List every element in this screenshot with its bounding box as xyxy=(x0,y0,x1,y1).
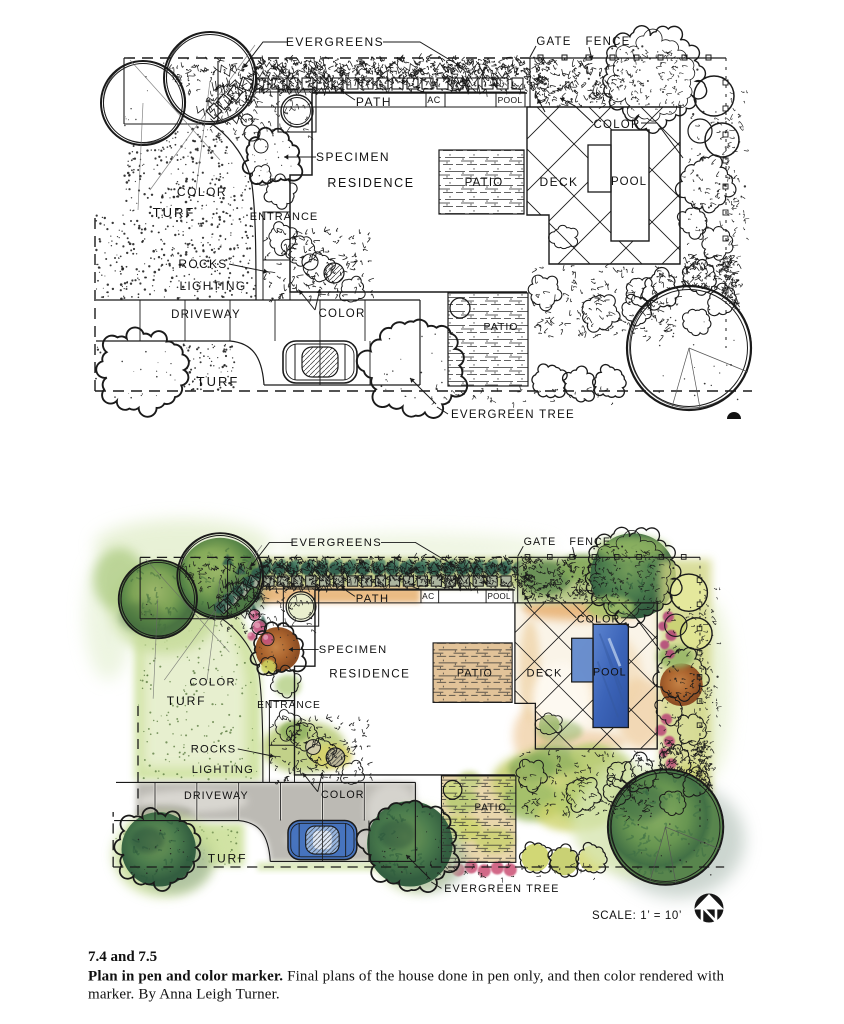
svg-text:7.4 and 7.5: 7.4 and 7.5 xyxy=(88,949,157,965)
svg-text:Plan in pen and color marker.: Plan in pen and color marker. Final plan… xyxy=(88,969,725,985)
svg-text:SCALE: 1’ = 10’: SCALE: 1’ = 10’ xyxy=(592,910,682,922)
svg-text:marker. By Anna Leigh Turner.: marker. By Anna Leigh Turner. xyxy=(88,987,280,1003)
